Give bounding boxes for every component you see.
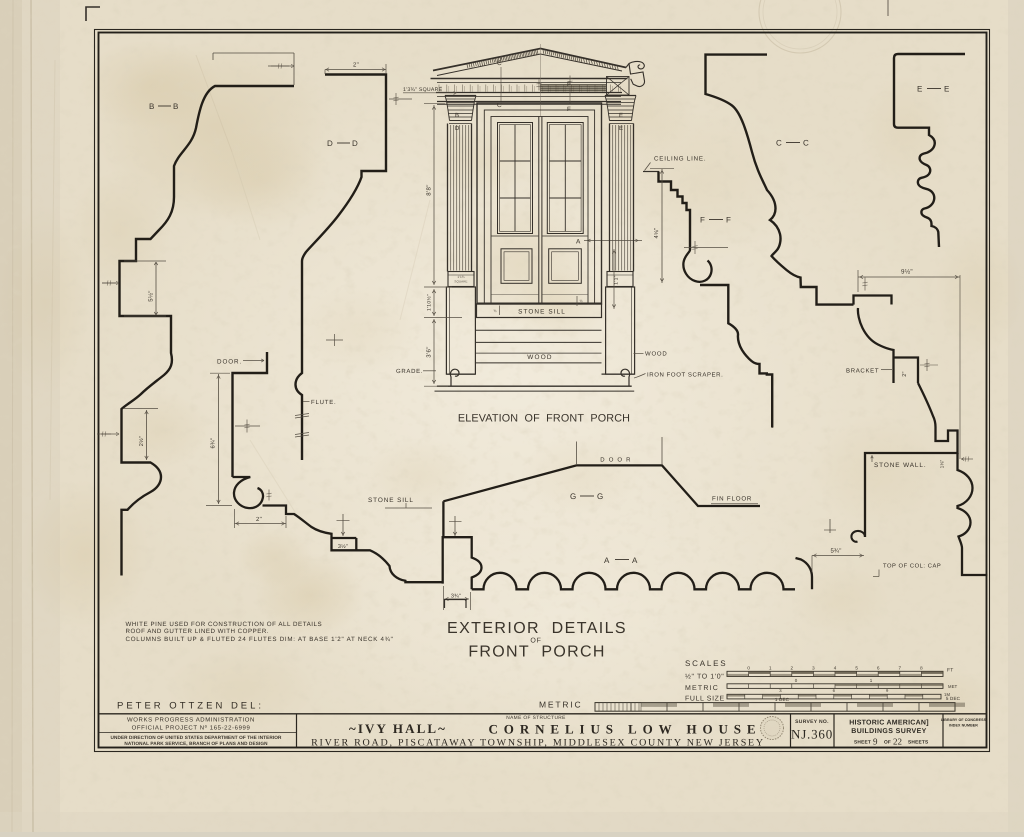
svg-text:COLUMNS BUILT UP & FLUTED: COLUMNS BUILT UP & FLUTED 24 FLUTES DIM:… (126, 636, 394, 643)
svg-text:IRON FOOT SCRAPER.: IRON FOOT SCRAPER. (647, 372, 723, 379)
svg-text:½" TO 1'0": ½" TO 1'0" (685, 674, 724, 681)
svg-text:SQUARE: SQUARE (454, 280, 467, 284)
svg-text:LIBRARY OF CONGRESS: LIBRARY OF CONGRESS (941, 718, 987, 722)
svg-text:1'10½": 1'10½" (427, 294, 433, 311)
svg-text:CEILING LINE.: CEILING LINE. (654, 156, 706, 163)
svg-text:⅝: ⅝ (580, 299, 583, 303)
svg-text:5 DEC: 5 DEC (946, 696, 961, 701)
svg-text:DOOR.: DOOR. (217, 359, 242, 366)
svg-text:FRONT PORCH: FRONT PORCH (468, 644, 605, 661)
svg-text:1'1": 1'1" (614, 275, 620, 285)
svg-text:BUILDINGS SURVEY: BUILDINGS SURVEY (851, 728, 927, 735)
svg-text:1 DEC: 1 DEC (775, 697, 790, 702)
svg-text:A: A (604, 556, 610, 565)
svg-text:E: E (619, 125, 623, 132)
svg-text:F: F (700, 216, 705, 225)
svg-text:FT: FT (947, 668, 954, 674)
svg-text:E: E (619, 112, 623, 119)
svg-text:G: G (597, 492, 603, 501)
svg-text:UNDER DIRECTION OF UNITED STAT: UNDER DIRECTION OF UNITED STATES DEPARTM… (110, 735, 282, 740)
svg-text:HISTORIC AMERICAN]: HISTORIC AMERICAN] (849, 719, 929, 727)
svg-text:NJ.360: NJ.360 (791, 727, 833, 742)
svg-text:2": 2" (256, 516, 262, 523)
svg-text:F: F (726, 216, 731, 225)
svg-text:INDEX NUMBER: INDEX NUMBER (949, 724, 978, 728)
svg-text:5¾": 5¾" (830, 548, 841, 555)
svg-text:NATIONAL PARK SERVICE, BRANCH: NATIONAL PARK SERVICE, BRANCH OF PLANS A… (124, 741, 268, 746)
svg-text:TOP OF COL: CAP: TOP OF COL: CAP (883, 563, 941, 570)
svg-text:ELEVATION OF FRONT PORCH: ELEVATION OF FRONT PORCH (458, 413, 630, 425)
svg-text:MET: MET (948, 684, 958, 689)
svg-text:E: E (917, 85, 922, 94)
svg-text:METRIC: METRIC (685, 685, 719, 692)
svg-text:RIVER ROAD, PISCATAWAY TOWNS: RIVER ROAD, PISCATAWAY TOWNSHIP, MIDDLES… (311, 737, 765, 748)
svg-text:G: G (570, 492, 576, 501)
svg-text:B: B (149, 102, 154, 111)
svg-text:9½": 9½" (901, 269, 913, 276)
svg-text:SURVEY NO.: SURVEY NO. (795, 719, 829, 725)
svg-text:F: F (567, 106, 571, 113)
svg-text:WOOD: WOOD (645, 351, 668, 358)
svg-text:C: C (803, 139, 809, 148)
svg-text:1'3¾" SQUARE: 1'3¾" SQUARE (403, 87, 443, 93)
svg-text:2": 2" (902, 371, 908, 376)
svg-text:GRADE.: GRADE. (396, 368, 423, 375)
svg-text:METRIC: METRIC (539, 700, 582, 710)
svg-text:EXTERIOR DETAILS: EXTERIOR DETAILS (447, 620, 627, 637)
svg-text:2": 2" (353, 62, 359, 69)
svg-text:B: B (455, 112, 459, 119)
svg-text:SHEET: SHEET (854, 740, 871, 746)
svg-text:22: 22 (893, 737, 902, 747)
svg-text:FIN FLOOR: FIN FLOOR (712, 496, 752, 503)
svg-text:B: B (173, 102, 178, 111)
svg-text:⅜: ⅜ (494, 309, 497, 313)
svg-text:SCALES: SCALES (685, 659, 727, 668)
svg-text:NAME OF STRUCTURE: NAME OF STRUCTURE (506, 715, 566, 721)
svg-text:FLUTE.: FLUTE. (311, 399, 336, 406)
svg-text:A: A (632, 556, 638, 565)
svg-text:D: D (455, 125, 460, 132)
svg-text:E: E (944, 85, 949, 94)
svg-text:6¾": 6¾" (210, 437, 217, 448)
svg-text:D: D (327, 139, 333, 148)
svg-text:WOOD: WOOD (527, 354, 552, 361)
svg-text:D: D (352, 139, 358, 148)
svg-text:A: A (576, 239, 581, 246)
svg-text:WORKS PROGRESS ADMINISTRAT: WORKS PROGRESS ADMINISTRATION (127, 717, 255, 724)
svg-text:C: C (776, 139, 782, 148)
svg-text:2½": 2½" (139, 436, 145, 447)
svg-text:STONE WALL.: STONE WALL. (874, 462, 927, 469)
svg-text:1'1¾: 1'1¾ (457, 275, 464, 279)
svg-text:ROOF AND GUTTER LINED WITH: ROOF AND GUTTER LINED WITH COPPER. (126, 628, 270, 635)
svg-text:8'8": 8'8" (426, 184, 433, 196)
svg-text:3'6": 3'6" (426, 346, 433, 358)
svg-text:1⅛": 1⅛" (940, 459, 946, 468)
svg-text:OFFICIAL PROJECT Nº 165-22-: OFFICIAL PROJECT Nº 165-22-6999 (132, 724, 251, 731)
svg-text:F: F (567, 81, 571, 88)
svg-text:~IVY HALL~: ~IVY HALL~ (349, 721, 447, 736)
svg-text:PETER OTTZEN DEL:: PETER OTTZEN DEL: (117, 701, 264, 712)
svg-text:FULL SIZE: FULL SIZE (685, 696, 725, 703)
svg-text:3½": 3½" (338, 544, 348, 550)
svg-text:STONE SILL: STONE SILL (368, 497, 414, 504)
svg-text:9: 9 (873, 737, 878, 747)
svg-text:STONE SILL: STONE SILL (518, 308, 566, 315)
svg-text:OF: OF (884, 740, 891, 746)
svg-text:CORNELIUS LOW HOUSE: CORNELIUS LOW HOUSE (489, 722, 762, 737)
svg-text:BRACKET: BRACKET (846, 368, 879, 375)
svg-text:4⅝": 4⅝" (654, 227, 660, 238)
svg-text:SHEETS: SHEETS (908, 740, 929, 746)
svg-text:D O O R: D O O R (600, 457, 631, 464)
svg-text:5½": 5½" (148, 290, 155, 301)
svg-text:WHITE PINE USED FOR CONSTR: WHITE PINE USED FOR CONSTRUCTION OF ALL … (126, 621, 323, 628)
svg-text:C: C (497, 60, 502, 67)
